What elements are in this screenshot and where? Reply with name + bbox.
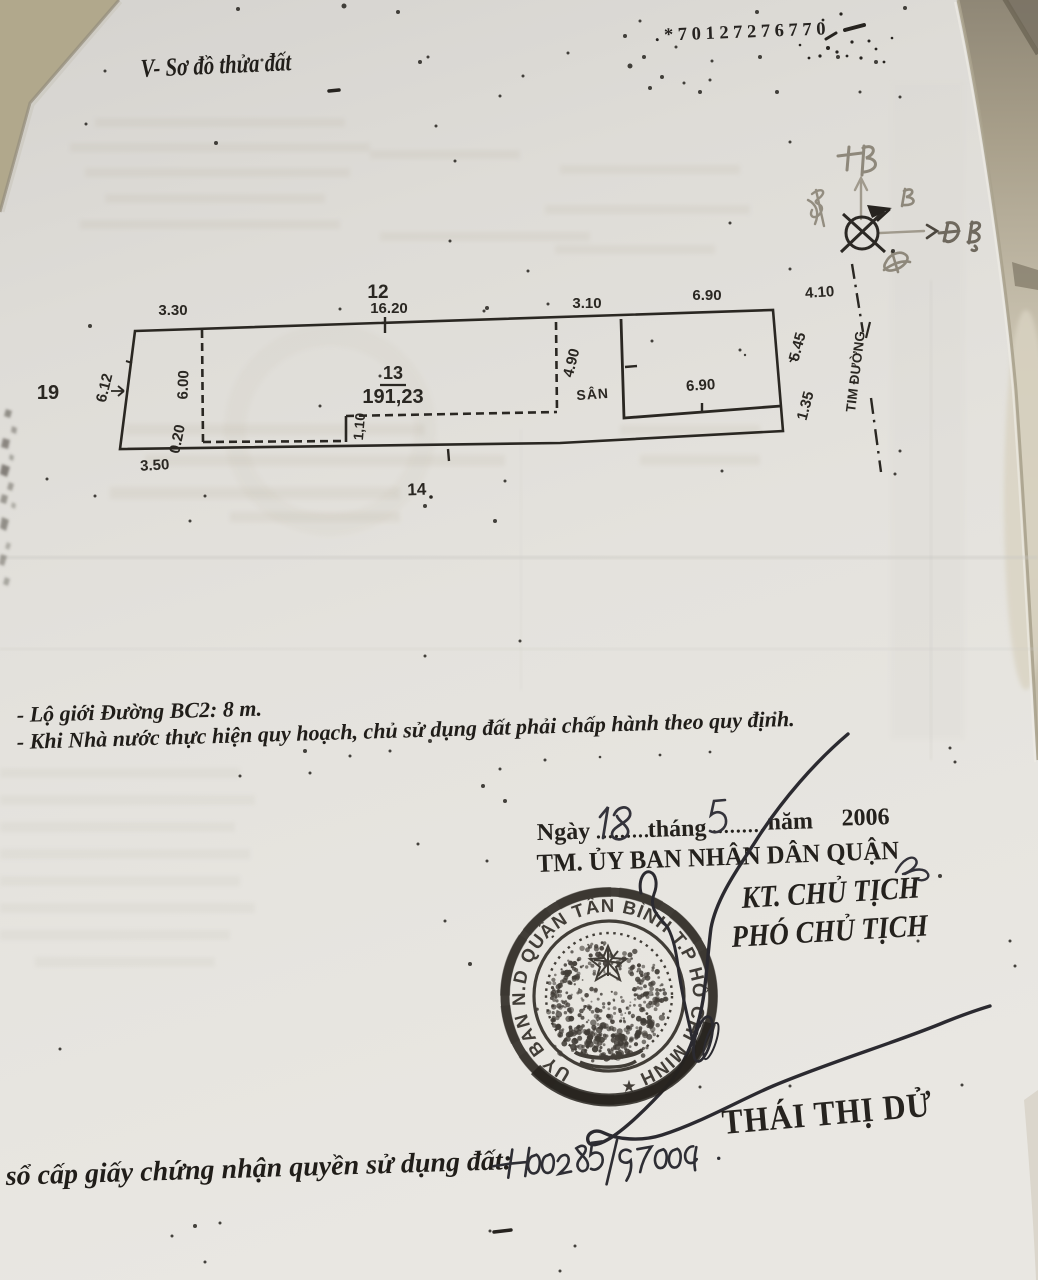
svg-text:16.20: 16.20 xyxy=(370,300,408,317)
svg-text:13: 13 xyxy=(383,363,403,383)
svg-text:6.90: 6.90 xyxy=(692,287,721,304)
svg-text:191,23: 191,23 xyxy=(362,386,423,408)
svg-text:4.10: 4.10 xyxy=(805,283,835,302)
svg-text:SÂN: SÂN xyxy=(576,384,610,403)
svg-text:19: 19 xyxy=(37,382,59,404)
svg-text:2006: 2006 xyxy=(841,804,890,831)
svg-text:6.00: 6.00 xyxy=(174,370,192,400)
svg-text:3.10: 3.10 xyxy=(572,295,601,312)
svg-text:1,10: 1,10 xyxy=(350,412,368,441)
svg-text:tháng: tháng xyxy=(647,815,706,843)
svg-text:14: 14 xyxy=(407,480,427,500)
svg-text:3.50: 3.50 xyxy=(140,456,170,475)
svg-text:6.90: 6.90 xyxy=(686,376,716,395)
svg-text:Ngày: Ngày xyxy=(536,819,590,846)
svg-text:3.30: 3.30 xyxy=(158,302,187,319)
